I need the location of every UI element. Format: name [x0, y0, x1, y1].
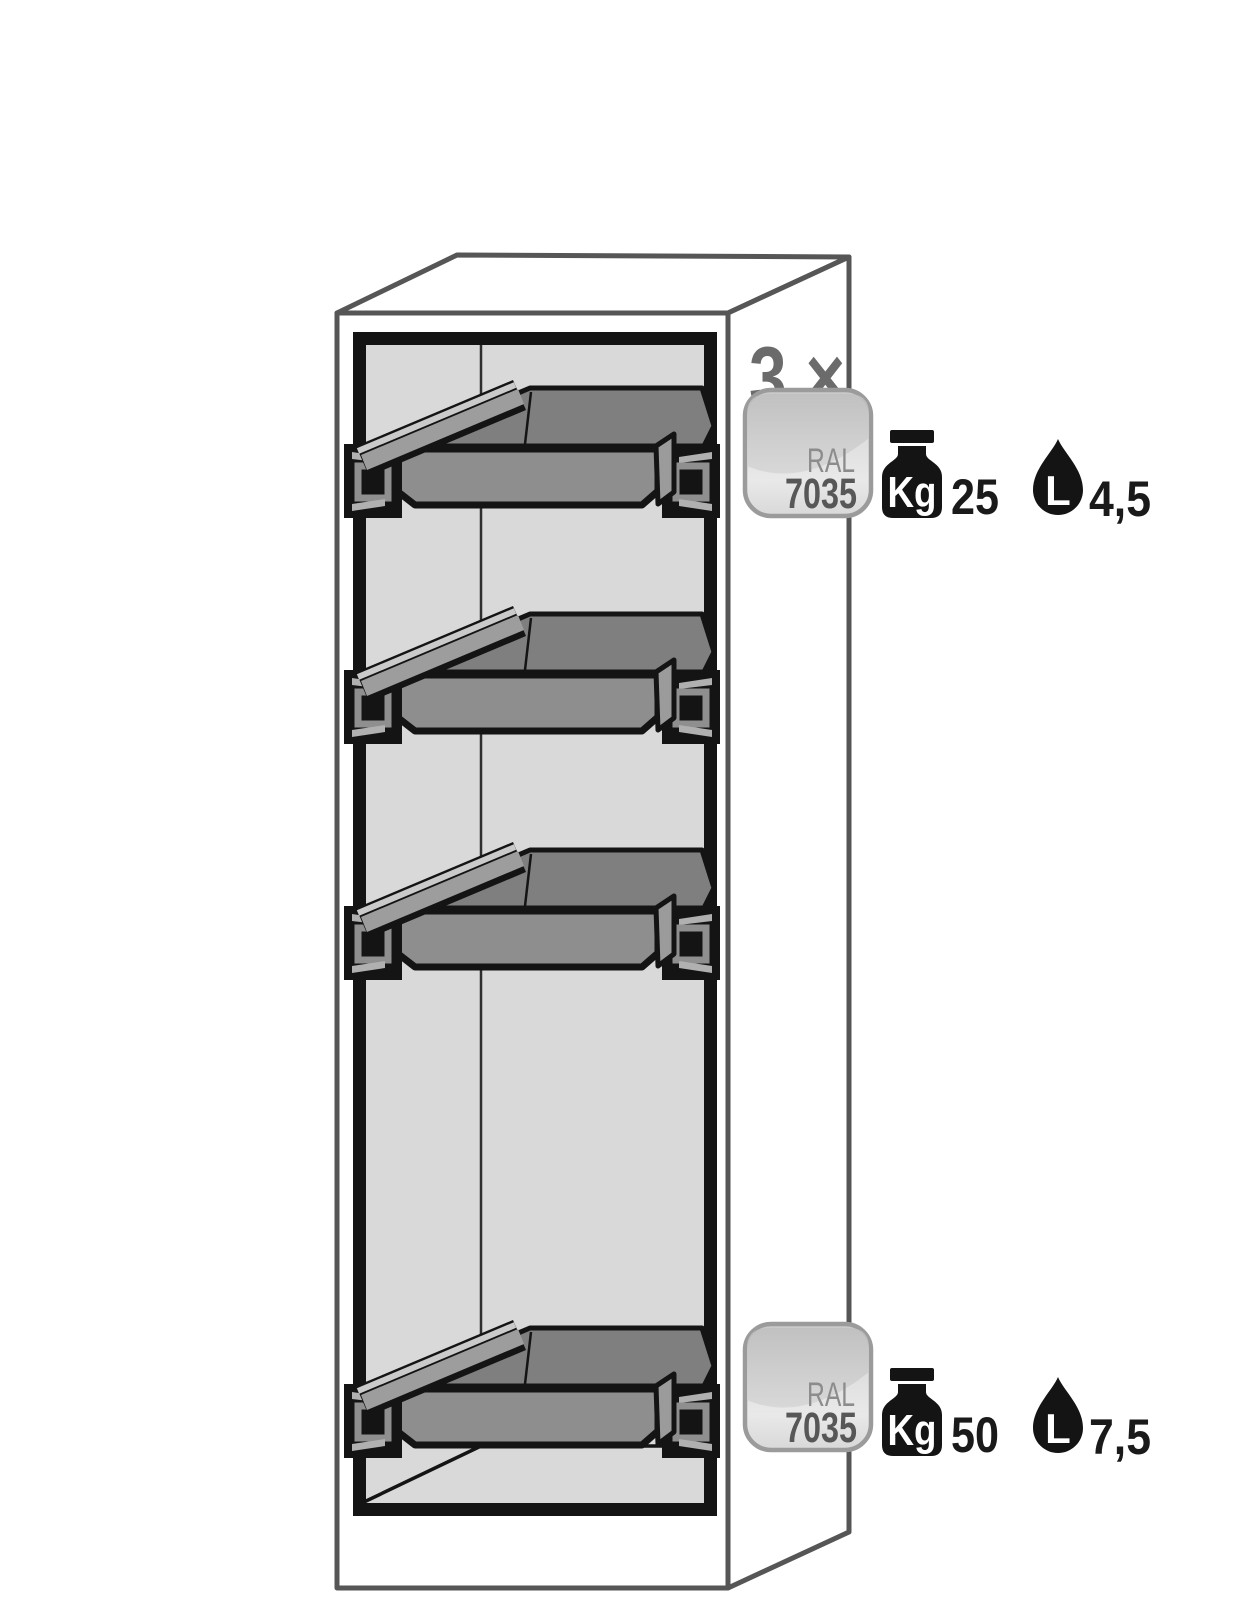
droplet-icon-bottom [1033, 1377, 1083, 1453]
illustration-stage: RAL 7035 Kg L 3 × 25 [0, 0, 1241, 1624]
safety-cabinet-illustration: RAL 7035 Kg L 3 × 25 [0, 0, 1241, 1624]
volume-value-top: 4,5 [1089, 471, 1151, 527]
weight-icon-top [882, 430, 942, 518]
ral-badge-top [745, 390, 871, 518]
volume-value-bottom: 7,5 [1089, 1409, 1151, 1465]
ral-badge-bottom [745, 1324, 871, 1452]
droplet-icon-top [1033, 439, 1083, 515]
weight-value-bottom: 50 [951, 1407, 999, 1463]
weight-icon-bottom [882, 1368, 942, 1456]
weight-value-top: 25 [951, 469, 999, 525]
